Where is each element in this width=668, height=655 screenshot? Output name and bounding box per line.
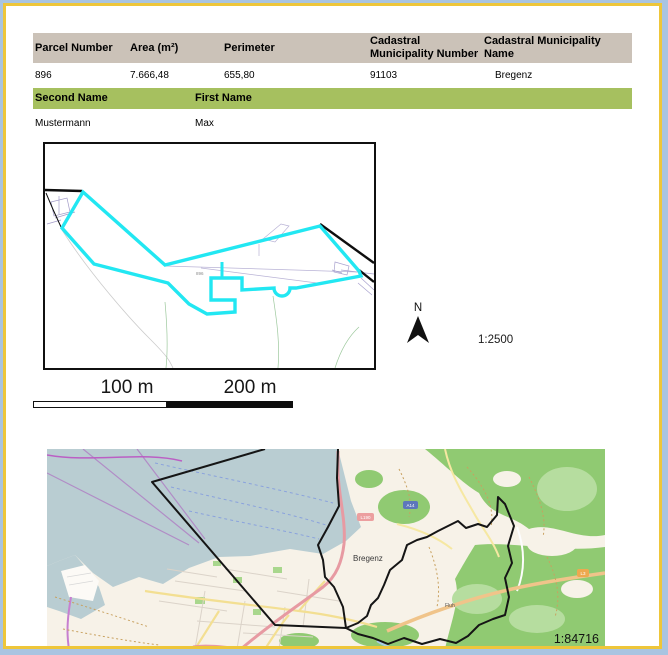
city-label-bregenz: Bregenz <box>353 554 383 563</box>
report-page: Parcel Number Area (m²) Perimeter Cadast… <box>3 3 662 649</box>
value-cadastral-municipality-name: Bregenz <box>482 70 632 82</box>
shield-l190-label: L190 <box>360 515 371 520</box>
scale-bar-label-100m: 100 m <box>82 377 172 399</box>
value-parcel-number: 896 <box>33 70 128 82</box>
header-first-name: First Name <box>193 92 632 105</box>
owner-table-data-row: Mustermann Max <box>33 109 632 144</box>
value-second-name: Mustermann <box>33 118 193 130</box>
parcel-number-map-label: 896 <box>196 271 204 276</box>
parcel-table-header-row: Parcel Number Area (m²) Perimeter Cadast… <box>33 33 632 63</box>
parcel-highlight <box>62 192 361 314</box>
shield-a14-label: A14 <box>406 503 415 508</box>
header-parcel-number: Parcel Number <box>33 42 128 55</box>
header-second-name: Second Name <box>33 92 193 105</box>
detail-map-scale-text: 1:2500 <box>478 334 513 346</box>
value-area: 7.666,48 <box>128 70 222 82</box>
owner-table-header-row: Second Name First Name <box>33 88 632 109</box>
scale-bar-segment-black <box>167 401 293 408</box>
value-first-name: Max <box>193 118 632 130</box>
parcel-detail-map: 896 <box>43 142 376 370</box>
overview-map-canvas: L190 A14 L3 Bregenz Fluh 1:84716 <box>47 449 605 649</box>
overview-map-scale-text: 1:84716 <box>554 632 599 646</box>
north-arrow: N <box>394 300 442 352</box>
north-arrow-icon <box>407 316 429 343</box>
header-area: Area (m²) <box>128 42 222 55</box>
scale-bar-label-200m: 200 m <box>205 377 295 399</box>
header-perimeter: Perimeter <box>222 42 368 55</box>
window-frame: Parcel Number Area (m²) Perimeter Cadast… <box>0 0 668 655</box>
value-cadastral-municipality-number: 91103 <box>368 70 482 82</box>
shield-l3-label: L3 <box>580 571 586 576</box>
header-cadastral-municipality-name: Cadastral Municipality Name <box>482 35 632 60</box>
value-perimeter: 655,80 <box>222 70 368 82</box>
place-label-fluh: Fluh <box>445 603 455 609</box>
scale-bar-segment-white <box>33 401 167 408</box>
header-cadastral-municipality-number: Cadastral Municipality Number <box>368 35 482 60</box>
owner-table: Second Name First Name Mustermann Max <box>33 88 632 144</box>
north-label: N <box>414 302 422 314</box>
parcel-info-table: Parcel Number Area (m²) Perimeter Cadast… <box>33 33 632 94</box>
overview-map: L190 A14 L3 Bregenz Fluh 1:84716 <box>47 449 605 649</box>
parcel-highlight-outline <box>62 192 361 314</box>
parcel-detail-map-canvas: 896 <box>45 144 374 368</box>
